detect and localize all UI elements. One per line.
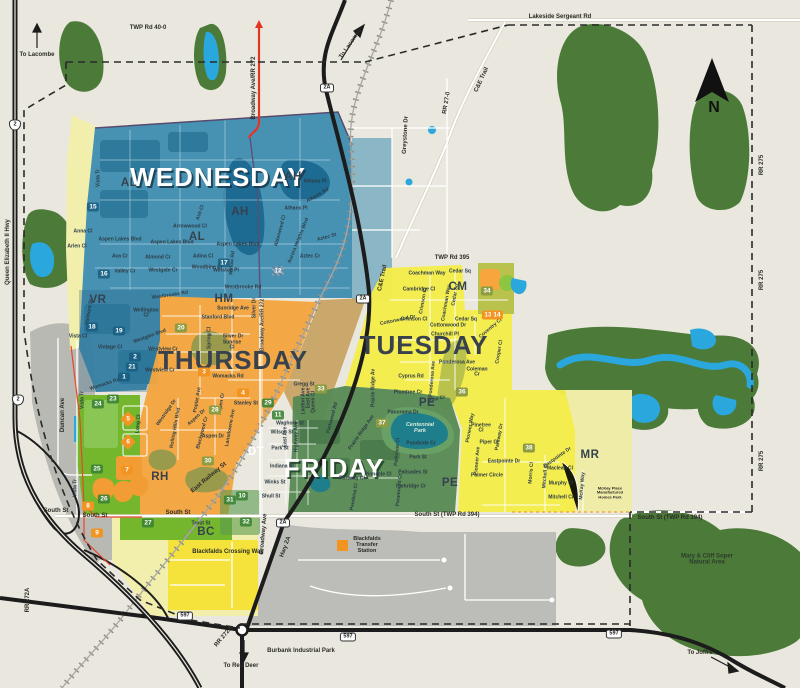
zone-friday — [268, 386, 460, 512]
base-map: N — [0, 0, 800, 688]
north-label: N — [708, 99, 720, 116]
bc-bright-yellow — [168, 540, 258, 610]
transfer-station-icon — [337, 540, 348, 551]
junction-circle — [237, 625, 248, 636]
collection-zone-map: N WEDNESDAYTHURSDAYTUESDAYFRIDAYAHAHALAL… — [0, 0, 800, 688]
